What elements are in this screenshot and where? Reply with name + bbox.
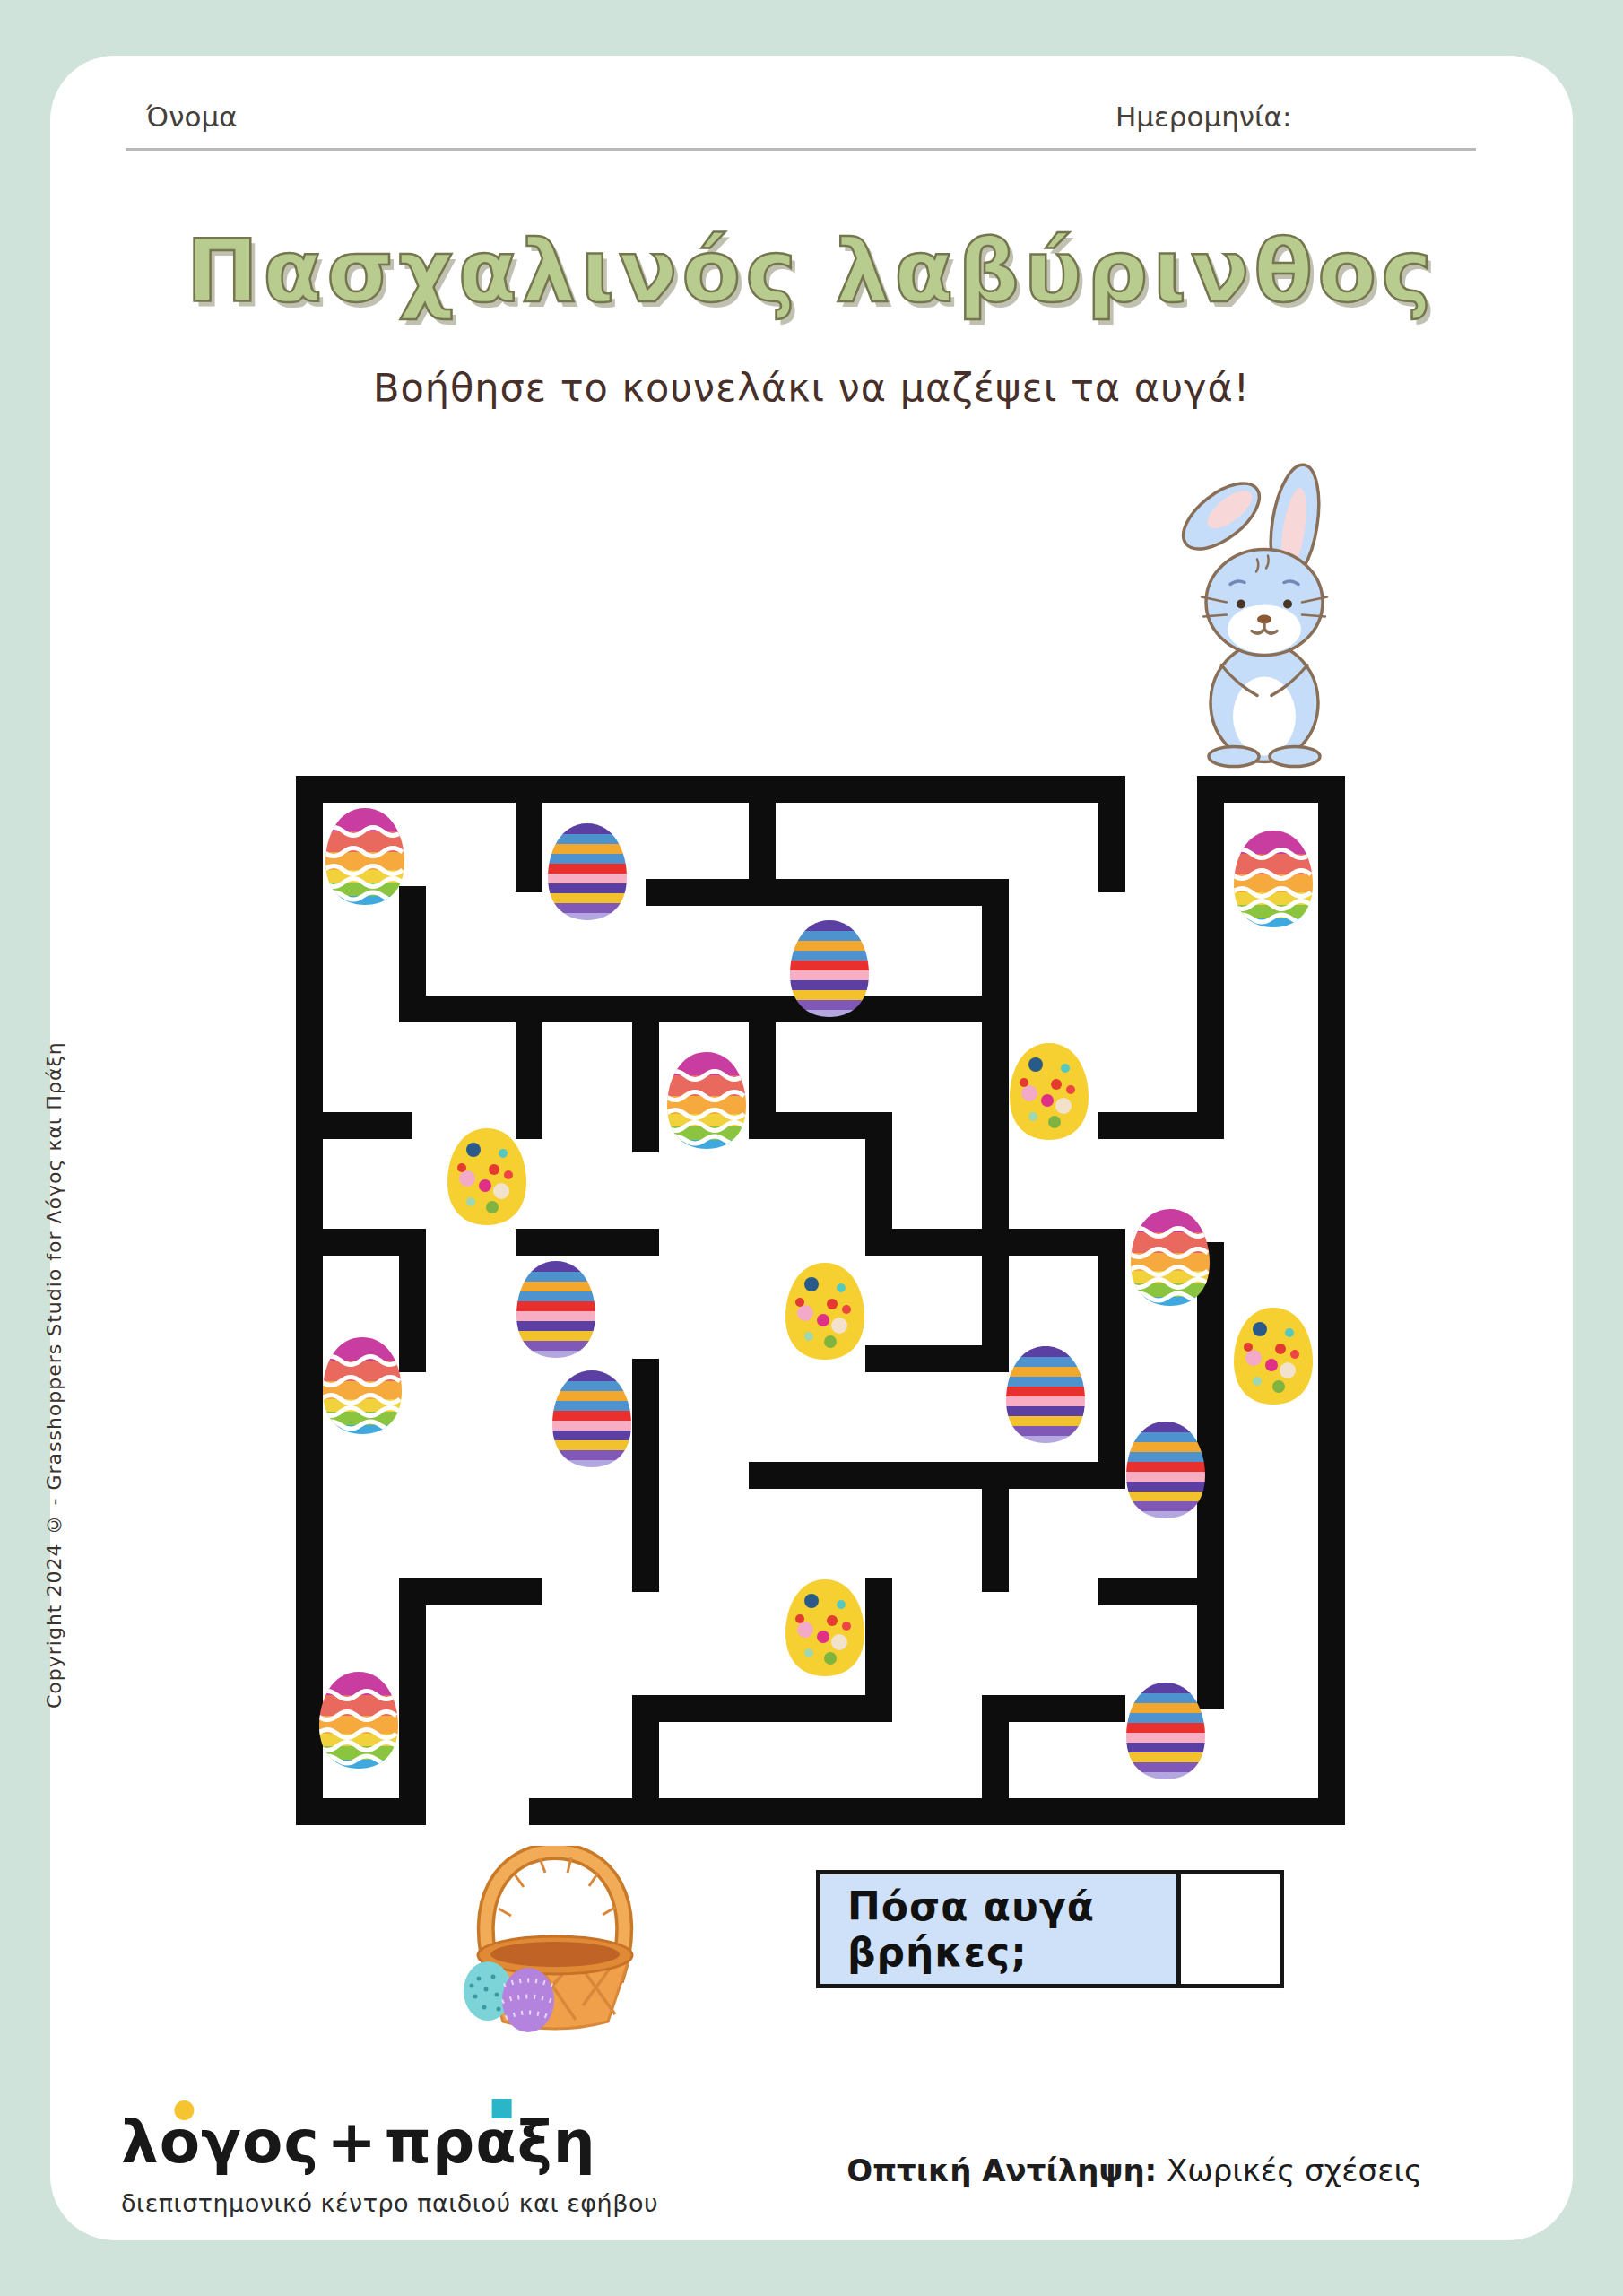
question-label: Πόσα αυγά βρήκες; [820,1874,1181,1984]
easter-egg-striped-icon [1006,1346,1085,1443]
brand-plus: + [327,2108,378,2177]
brand-logo: λογος+πραξη διεπιστημονικό κέντρο παιδιο… [121,2108,658,2217]
brand-tagline: διεπιστημονικό κέντρο παιδιού και εφήβου [121,2189,658,2217]
easter-egg-striped-icon [548,823,627,920]
brand-name: λογος+πραξη [121,2108,658,2177]
easter-egg-wavy-icon [317,1672,398,1769]
brand-text: γος [201,2108,319,2177]
name-label: Όνομα [146,100,238,133]
easter-egg-wavy-icon [324,808,404,905]
bunny-icon [1175,459,1354,771]
easter-egg-striped-icon [1126,1422,1205,1518]
category-label: Οπτική Αντίληψη: Χωρικές σχέσεις [846,2152,1422,2188]
brand-text: πρ [385,2108,475,2177]
header-underline [126,148,1476,151]
easter-egg-striped-icon [516,1261,595,1358]
category-bold: Οπτική Αντίληψη: [846,2152,1157,2188]
easter-egg-wavy-icon [665,1052,746,1149]
brand-accent-square-icon [492,2099,512,2118]
page-subtitle: Βοήθησε το κουνελάκι να μαζέψει τα αυγά! [50,365,1573,410]
brand-accent-dot-icon [174,2100,194,2120]
brand-text: λ [121,2108,160,2177]
easter-egg-dotted-icon [447,1128,526,1225]
answer-box[interactable] [1181,1874,1280,1984]
easter-egg-dotted-icon [785,1579,864,1676]
worksheet-card: Όνομα Ημερομηνία: Πασχαλινός λαβύρινθος … [50,56,1573,2240]
easter-egg-wavy-icon [321,1337,402,1434]
easter-egg-striped-icon [790,920,869,1017]
easter-egg-striped-icon [1126,1683,1205,1779]
copyright-text: Copyright 2024 © - Grasshoppers Studio f… [43,1090,65,1709]
easter-egg-striped-icon [552,1370,631,1467]
easter-egg-dotted-icon [785,1263,864,1360]
brand-text: ξη [517,2108,596,2177]
basket-icon [441,1846,670,2041]
easter-egg-wavy-icon [1232,831,1313,927]
easter-egg-wavy-icon [1129,1209,1210,1306]
basket-egg-purple-icon [502,1968,554,2032]
date-label: Ημερομηνία: [1115,100,1292,133]
easter-egg-dotted-icon [1010,1043,1089,1140]
easter-egg-dotted-icon [1234,1308,1313,1405]
question-box: Πόσα αυγά βρήκες; [816,1870,1284,1988]
category-rest: Χωρικές σχέσεις [1157,2152,1422,2188]
page-title: Πασχαλινός λαβύρινθος [50,222,1573,322]
maze-eggs [317,808,1313,1779]
maze[interactable] [296,776,1345,1825]
